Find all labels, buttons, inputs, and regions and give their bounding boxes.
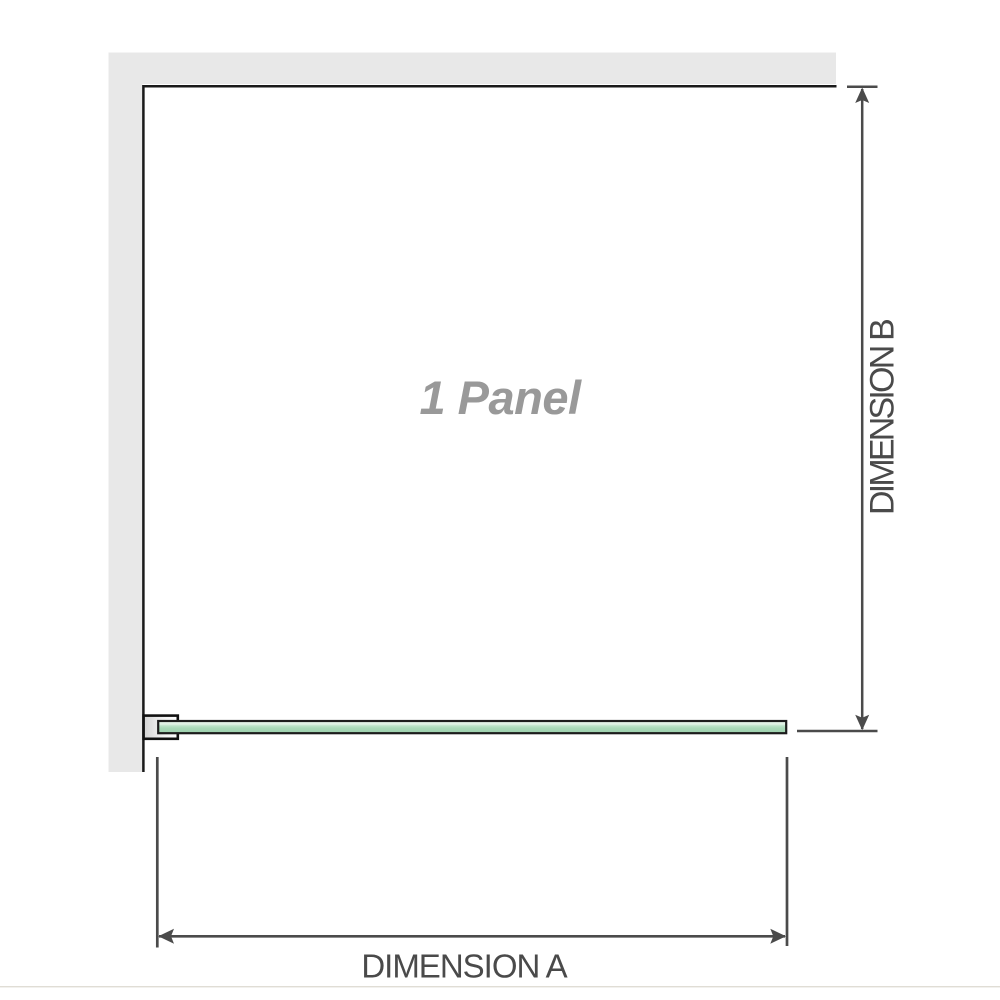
- svg-text:DIMENSION B: DIMENSION B: [863, 320, 901, 515]
- svg-text:DIMENSION A: DIMENSION A: [361, 948, 567, 985]
- svg-text:1 Panel: 1 Panel: [419, 371, 582, 424]
